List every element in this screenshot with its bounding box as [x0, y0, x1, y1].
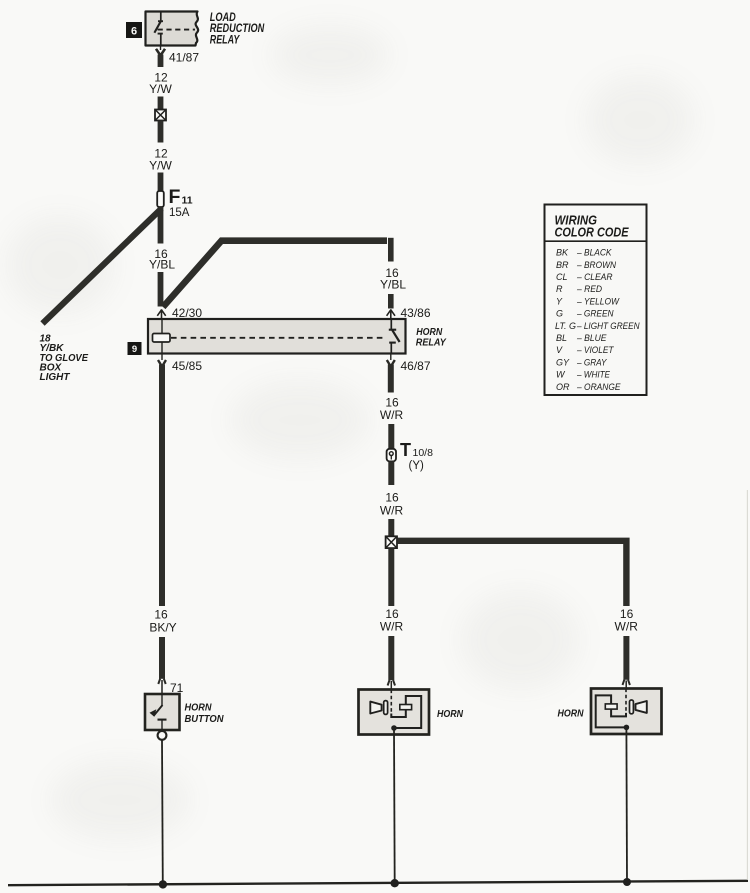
svg-text:6: 6 — [131, 26, 137, 38]
svg-text:COLOR CODE: COLOR CODE — [555, 225, 629, 240]
svg-text:BR: BR — [556, 260, 569, 270]
svg-text:41/87: 41/87 — [169, 51, 199, 65]
svg-text:G: G — [556, 309, 563, 319]
svg-text:16: 16 — [385, 491, 399, 505]
svg-text:43/86: 43/86 — [401, 306, 431, 320]
svg-text:Y/BL: Y/BL — [149, 258, 175, 272]
svg-text:– LIGHT GREEN: – LIGHT GREEN — [576, 321, 640, 331]
svg-text:– CLEAR: – CLEAR — [576, 272, 613, 282]
svg-text:– GRAY: – GRAY — [576, 357, 607, 367]
svg-text:R: R — [556, 284, 563, 294]
svg-text:W/R: W/R — [380, 504, 404, 518]
svg-text:46/87: 46/87 — [401, 359, 431, 373]
svg-text:HORN: HORN — [437, 709, 464, 720]
svg-text:BK: BK — [556, 248, 569, 258]
svg-text:HORN: HORN — [558, 709, 585, 720]
svg-text:– BLUE: – BLUE — [576, 333, 607, 343]
svg-text:– RED: – RED — [576, 284, 602, 294]
svg-text:W/R: W/R — [380, 620, 404, 634]
svg-text:BK/Y: BK/Y — [149, 621, 176, 635]
svg-text:RELAY: RELAY — [416, 338, 447, 349]
svg-text:HORN: HORN — [185, 703, 213, 714]
svg-text:LT. G: LT. G — [555, 321, 576, 331]
svg-text:16: 16 — [154, 608, 168, 622]
svg-text:– VIOLET: – VIOLET — [576, 345, 615, 355]
svg-text:11: 11 — [182, 194, 193, 206]
svg-text:(Y): (Y) — [409, 460, 425, 472]
svg-text:T: T — [400, 440, 411, 460]
svg-text:W/R: W/R — [380, 408, 404, 422]
svg-text:F: F — [169, 186, 181, 208]
svg-text:15A: 15A — [169, 207, 190, 219]
svg-text:– WHITE: – WHITE — [576, 370, 611, 380]
svg-text:9: 9 — [132, 344, 137, 355]
svg-text:– GREEN: – GREEN — [576, 309, 614, 319]
svg-text:W/R: W/R — [615, 620, 639, 634]
svg-text:OR: OR — [556, 382, 570, 392]
svg-text:– BROWN: – BROWN — [576, 260, 616, 270]
svg-text:Y/W: Y/W — [149, 159, 172, 173]
svg-text:Y/BL: Y/BL — [380, 278, 406, 292]
svg-text:45/85: 45/85 — [172, 359, 202, 373]
svg-text:RELAY: RELAY — [210, 32, 240, 46]
svg-text:10/8: 10/8 — [413, 447, 434, 459]
svg-text:BL: BL — [556, 333, 567, 343]
svg-text:V: V — [556, 345, 563, 355]
svg-text:Y/W: Y/W — [149, 82, 172, 96]
svg-text:HORN: HORN — [416, 327, 443, 338]
svg-text:Y: Y — [556, 296, 563, 306]
svg-text:CL: CL — [556, 272, 568, 282]
svg-text:– BLACK: – BLACK — [576, 248, 612, 258]
svg-text:42/30: 42/30 — [172, 306, 202, 320]
svg-text:BUTTON: BUTTON — [185, 714, 225, 725]
svg-text:– ORANGE: – ORANGE — [576, 382, 621, 392]
svg-text:LIGHT: LIGHT — [40, 372, 71, 383]
svg-text:– YELLOW: – YELLOW — [576, 296, 620, 306]
svg-text:GY: GY — [556, 357, 570, 367]
